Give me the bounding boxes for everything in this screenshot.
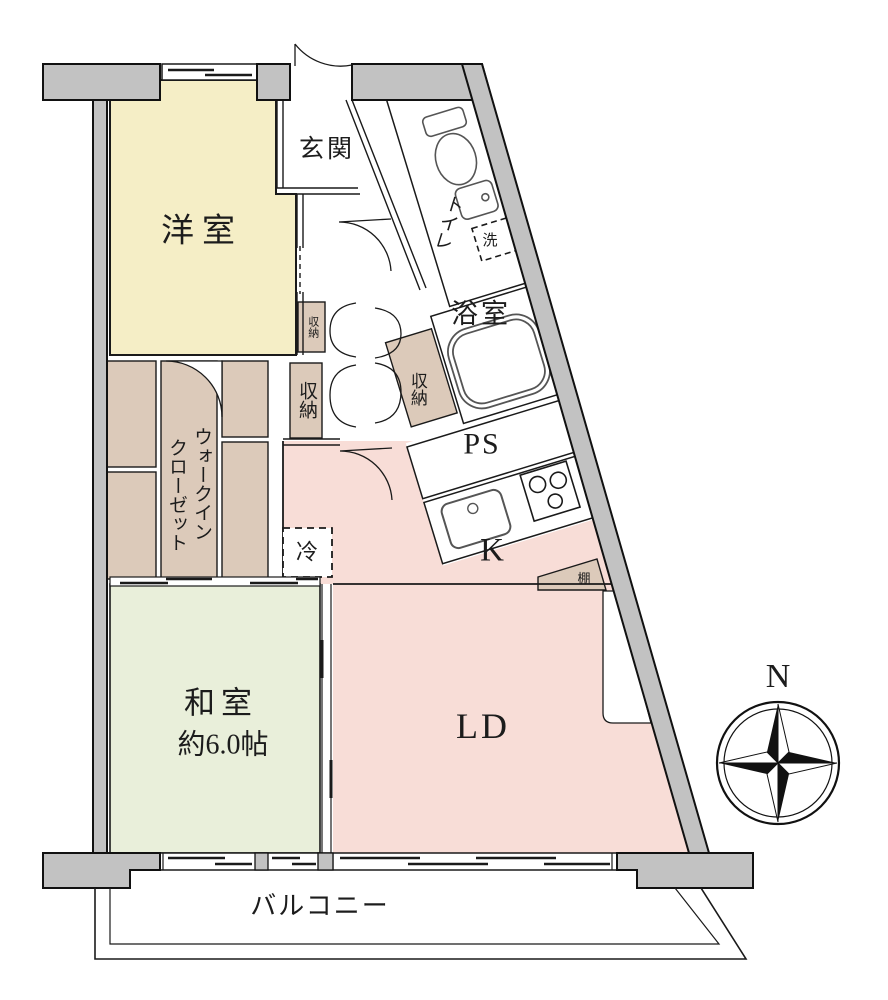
label-shelf: 棚 xyxy=(577,572,590,586)
wic-cell xyxy=(222,442,268,579)
room-label-entrance: 玄関 xyxy=(299,137,355,163)
label-pipe-space: PS xyxy=(463,428,500,460)
label-wic-line2: クローゼット xyxy=(166,438,186,552)
entrance-door-arc xyxy=(295,44,352,66)
window-top xyxy=(162,64,257,80)
wall-bottom-right-block xyxy=(617,853,753,888)
window-post xyxy=(318,853,333,870)
wic-cell xyxy=(222,361,268,437)
label-fridge: 冷 xyxy=(296,540,318,563)
label-storage-a: 収納 xyxy=(306,316,318,338)
window-post xyxy=(255,853,268,870)
compass-needle xyxy=(719,704,837,822)
wall-top-left-block xyxy=(43,64,160,100)
label-wash: 洗 xyxy=(482,234,497,250)
label-washitsu-size: 約6.0帖 xyxy=(177,730,268,759)
wic-cell xyxy=(107,472,156,579)
room-label-bathroom: 浴室 xyxy=(451,300,511,328)
room-label-ld: LD xyxy=(456,708,510,746)
balcony-outline xyxy=(95,888,746,959)
wall-top-mid-block xyxy=(257,64,290,100)
label-storage-b: 収納 xyxy=(296,381,316,419)
wall-bottom-left-block xyxy=(43,853,160,888)
room-label-washitsu: 和室 xyxy=(184,688,258,721)
compass-north-label: N xyxy=(766,659,791,695)
washitsu-top-band xyxy=(110,577,320,586)
label-wic-line1: ウォークイン xyxy=(191,427,211,541)
wic-cell xyxy=(107,361,156,467)
room-label-western: 洋室 xyxy=(161,215,243,250)
floor-plan: 洋室 玄関 トイレ 洗 浴室 収納 収納 収納 PS K 冷 棚 ウォークイン … xyxy=(0,0,888,1000)
room-label-kitchen: K xyxy=(480,534,504,569)
room-label-balcony: バルコニー xyxy=(250,892,389,919)
window-bottom xyxy=(160,853,617,870)
label-storage-c: 収納 xyxy=(408,372,426,406)
compass-icon xyxy=(717,702,839,824)
wall-left xyxy=(93,100,107,853)
